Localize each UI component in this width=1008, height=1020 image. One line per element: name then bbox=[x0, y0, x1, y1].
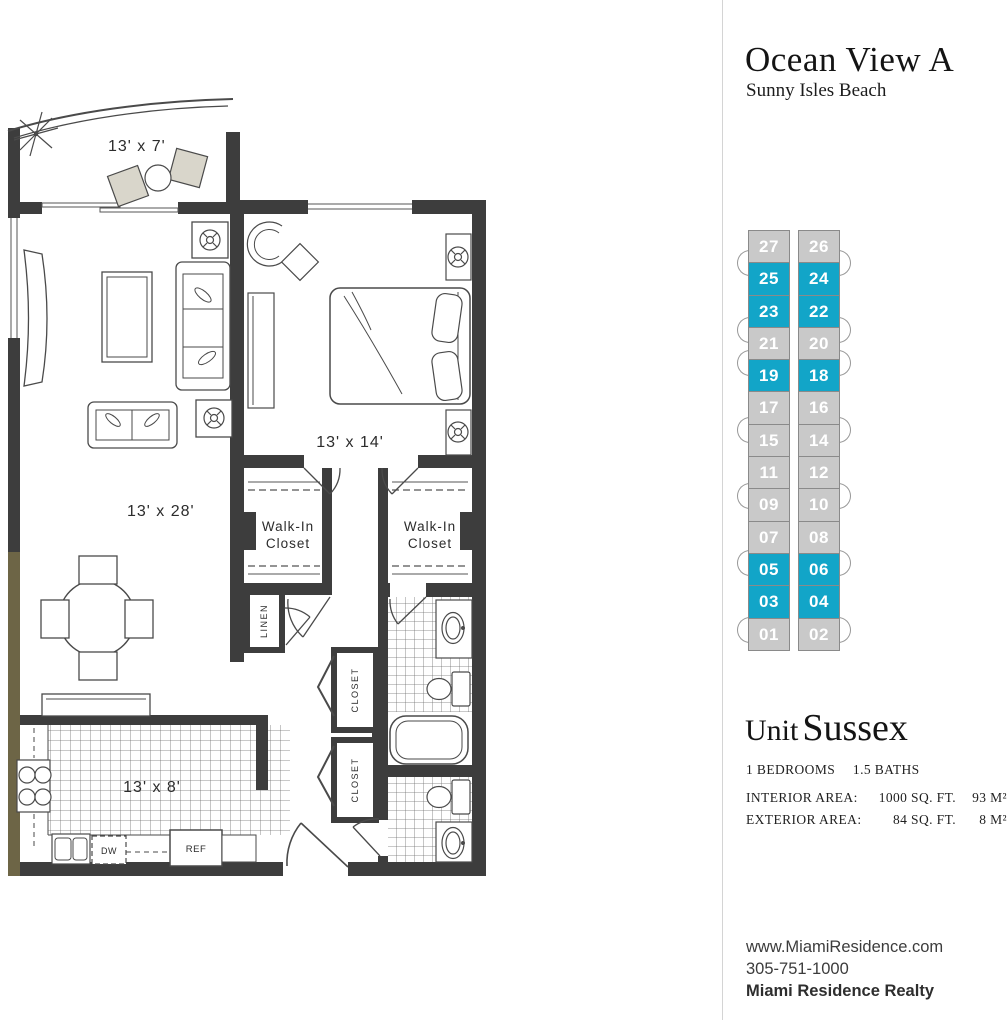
stack-unit-18[interactable]: 18 bbox=[798, 359, 840, 392]
bedrooms-value: 1 BEDROOMS bbox=[746, 762, 835, 777]
dining-table bbox=[59, 580, 135, 656]
closet-1-label: CLOSET bbox=[350, 667, 360, 712]
stack-unit-15[interactable]: 15 bbox=[748, 424, 790, 457]
exterior-area-label: EXTERIOR AREA: bbox=[746, 809, 866, 831]
building-stack: 27252321191715110907050301 2624222018161… bbox=[748, 230, 840, 664]
lamp-icon bbox=[204, 408, 224, 428]
living-dim-label: 13' x 28' bbox=[127, 503, 195, 520]
interior-area-row: INTERIOR AREA: 1000 SQ. FT. 93 M² bbox=[746, 787, 1007, 809]
dining-chair bbox=[79, 652, 117, 680]
bedroom-window bbox=[308, 200, 412, 214]
stack-unit-12[interactable]: 12 bbox=[798, 456, 840, 489]
balcony-table bbox=[145, 165, 171, 191]
dining-chair bbox=[79, 556, 117, 584]
stack-unit-09[interactable]: 09 bbox=[748, 488, 790, 521]
dresser bbox=[248, 293, 274, 408]
stack-unit-25[interactable]: 25 bbox=[748, 262, 790, 295]
stack-column-right: 26242220181614121008060402 bbox=[798, 230, 840, 651]
stack-unit-04[interactable]: 04 bbox=[798, 585, 840, 618]
stack-unit-27[interactable]: 27 bbox=[748, 230, 790, 263]
bedroom-dim-label: 13' x 14' bbox=[316, 434, 384, 451]
kitchen-counter bbox=[222, 835, 256, 862]
company-name: Miami Residence Realty bbox=[746, 980, 943, 1002]
stack-unit-08[interactable]: 08 bbox=[798, 521, 840, 554]
wic-right-label-1: Walk-In bbox=[404, 519, 456, 534]
lamp-icon bbox=[448, 247, 468, 267]
stack-unit-05[interactable]: 05 bbox=[748, 553, 790, 586]
website-link[interactable]: www.MiamiResidence.com bbox=[746, 936, 943, 958]
spec-beds-baths: 1 BEDROOMS 1.5 BATHS bbox=[746, 762, 1007, 778]
lamp-icon bbox=[200, 230, 220, 250]
unit-word: Unit bbox=[745, 714, 798, 747]
lamp-icon bbox=[448, 422, 468, 442]
console-table bbox=[42, 694, 150, 716]
phone-number: 305-751-1000 bbox=[746, 958, 943, 980]
page: 13' x 7' bbox=[0, 0, 1008, 1020]
wic-left-label-1: Walk-In bbox=[262, 519, 314, 534]
dining-chair bbox=[41, 600, 69, 638]
contact-footer: www.MiamiResidence.com 305-751-1000 Miam… bbox=[746, 936, 943, 1002]
wall-olive bbox=[8, 552, 20, 876]
stack-unit-17[interactable]: 17 bbox=[748, 391, 790, 424]
stack-unit-10[interactable]: 10 bbox=[798, 488, 840, 521]
page-title: Ocean View A bbox=[745, 40, 954, 80]
unit-name: Sussex bbox=[802, 707, 908, 749]
dishwasher-label: DW bbox=[101, 846, 117, 856]
interior-m2-value: 93 M² bbox=[956, 787, 1007, 809]
wic-left-label-2: Closet bbox=[266, 536, 310, 551]
floor-plan: 13' x 7' bbox=[0, 0, 500, 1020]
stack-unit-03[interactable]: 03 bbox=[748, 585, 790, 618]
exterior-sqft-value: 84 SQ. FT. bbox=[866, 809, 956, 831]
balcony-dim-label: 13' x 7' bbox=[108, 138, 166, 155]
stack-unit-14[interactable]: 14 bbox=[798, 424, 840, 457]
stack-unit-24[interactable]: 24 bbox=[798, 262, 840, 295]
page-subtitle: Sunny Isles Beach bbox=[746, 80, 886, 102]
stack-column-left: 27252321191715110907050301 bbox=[748, 230, 790, 651]
stack-unit-11[interactable]: 11 bbox=[748, 456, 790, 489]
stack-unit-23[interactable]: 23 bbox=[748, 295, 790, 328]
stack-unit-21[interactable]: 21 bbox=[748, 327, 790, 360]
unit-specs: 1 BEDROOMS 1.5 BATHS INTERIOR AREA: 1000… bbox=[746, 762, 1007, 831]
wic-right-label-2: Closet bbox=[408, 536, 452, 551]
stack-unit-07[interactable]: 07 bbox=[748, 521, 790, 554]
panel-divider bbox=[722, 0, 723, 1020]
closet-2-label: CLOSET bbox=[350, 757, 360, 802]
dining-chair bbox=[125, 600, 153, 638]
exterior-m2-value: 8 M² bbox=[956, 809, 1007, 831]
baths-value: 1.5 BATHS bbox=[853, 762, 920, 777]
interior-sqft-value: 1000 SQ. FT. bbox=[866, 787, 956, 809]
right-panel: Ocean View A Sunny Isles Beach 272523211… bbox=[745, 0, 1007, 1020]
interior-area-label: INTERIOR AREA: bbox=[746, 787, 866, 809]
stack-unit-26[interactable]: 26 bbox=[798, 230, 840, 263]
refrigerator-label: REF bbox=[186, 844, 207, 855]
sink-icon bbox=[442, 613, 465, 644]
stack-unit-16[interactable]: 16 bbox=[798, 391, 840, 424]
unit-title: Unit Sussex bbox=[745, 706, 908, 750]
stack-unit-20[interactable]: 20 bbox=[798, 327, 840, 360]
kitchen-dim-label: 13' x 8' bbox=[123, 779, 181, 796]
sink-icon bbox=[442, 828, 465, 859]
stack-unit-19[interactable]: 19 bbox=[748, 359, 790, 392]
powder-room bbox=[388, 777, 472, 862]
stack-unit-22[interactable]: 22 bbox=[798, 295, 840, 328]
stack-unit-01[interactable]: 01 bbox=[748, 618, 790, 651]
exterior-area-row: EXTERIOR AREA: 84 SQ. FT. 8 M² bbox=[746, 809, 1007, 831]
stack-unit-06[interactable]: 06 bbox=[798, 553, 840, 586]
linen-label: LINEN bbox=[259, 604, 269, 638]
stack-unit-02[interactable]: 02 bbox=[798, 618, 840, 651]
